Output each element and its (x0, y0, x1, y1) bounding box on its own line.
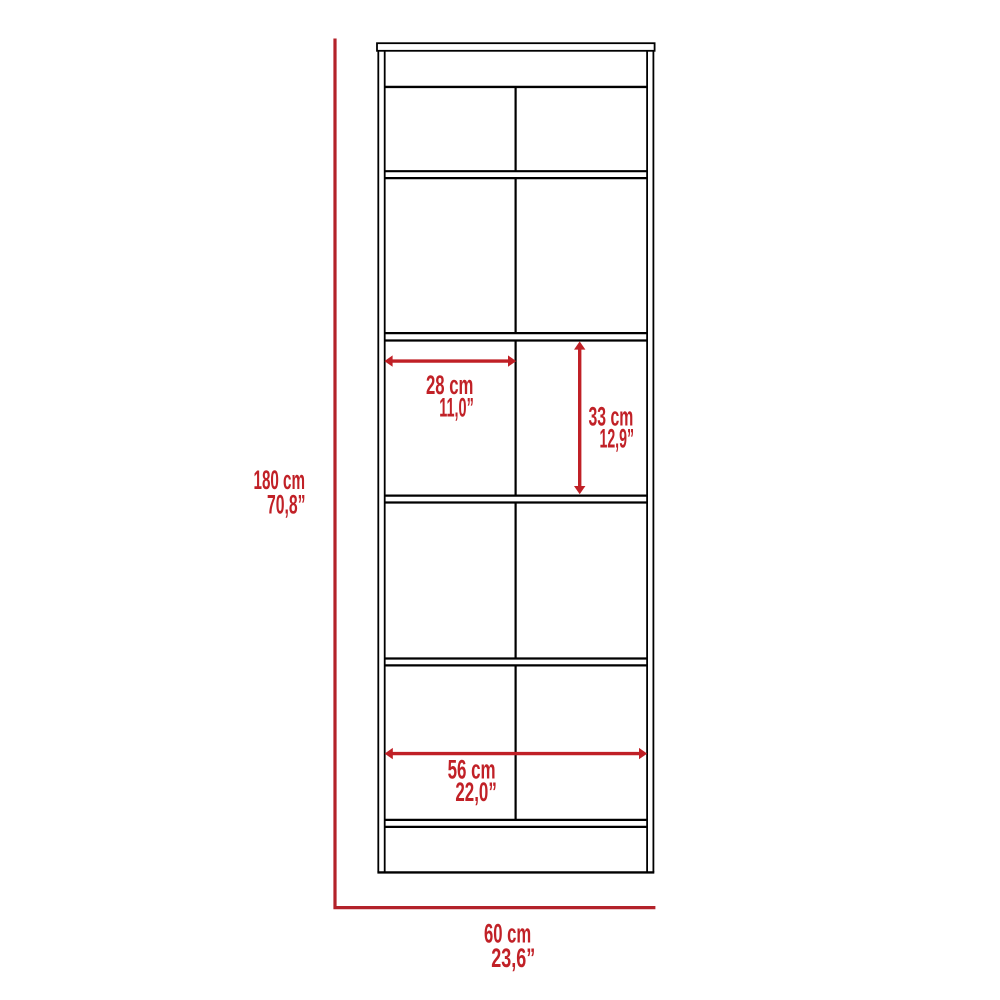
svg-text:11,0”: 11,0” (439, 393, 474, 423)
svg-text:22,0”: 22,0” (455, 777, 496, 807)
svg-text:23,6”: 23,6” (491, 943, 535, 973)
svg-text:70,8”: 70,8” (267, 490, 306, 520)
svg-text:12,9”: 12,9” (600, 423, 635, 453)
